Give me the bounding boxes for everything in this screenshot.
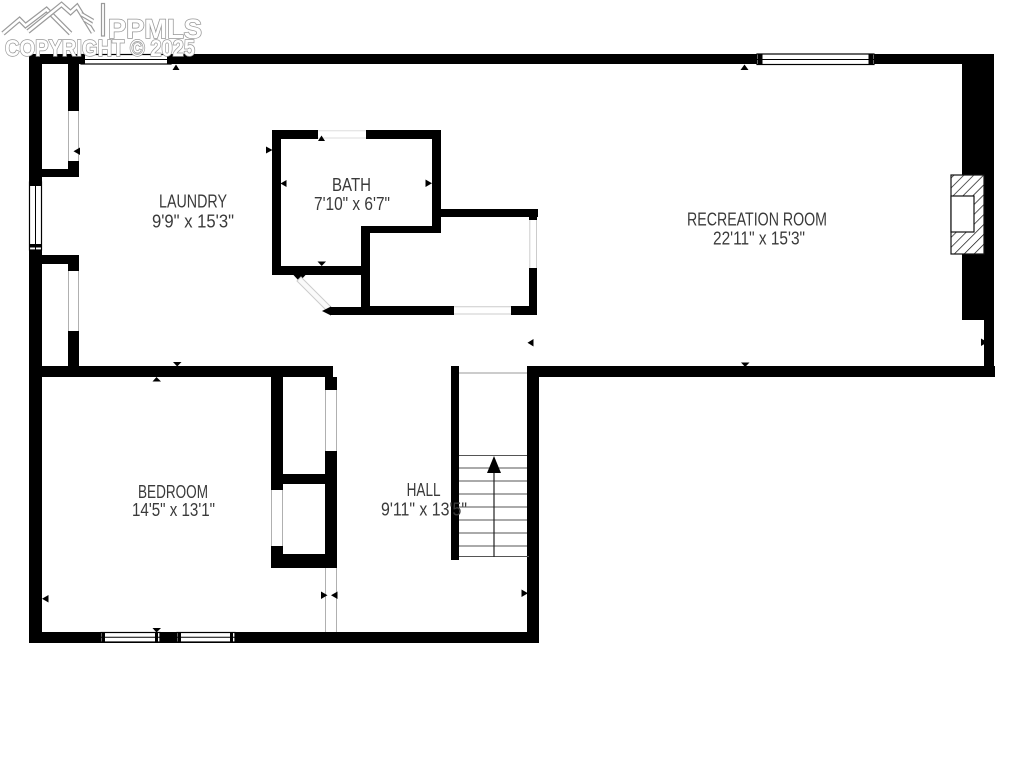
svg-text:HALL: HALL — [407, 480, 441, 500]
svg-text:7'10" x 6'7": 7'10" x 6'7" — [314, 194, 390, 214]
svg-text:LAUNDRY: LAUNDRY — [159, 192, 227, 212]
svg-text:COPYRIGHT © 2025: COPYRIGHT © 2025 — [5, 35, 195, 61]
svg-text:BEDROOM: BEDROOM — [138, 482, 208, 502]
svg-text:9'11" x 13'5": 9'11" x 13'5" — [381, 500, 467, 520]
svg-text:9'9" x 15'3": 9'9" x 15'3" — [152, 212, 234, 232]
svg-text:RECREATION ROOM: RECREATION ROOM — [687, 210, 827, 230]
svg-text:BATH: BATH — [332, 175, 371, 195]
svg-text:22'11" x 15'3": 22'11" x 15'3" — [713, 229, 805, 249]
svg-text:14'5" x 13'1": 14'5" x 13'1" — [132, 500, 215, 520]
